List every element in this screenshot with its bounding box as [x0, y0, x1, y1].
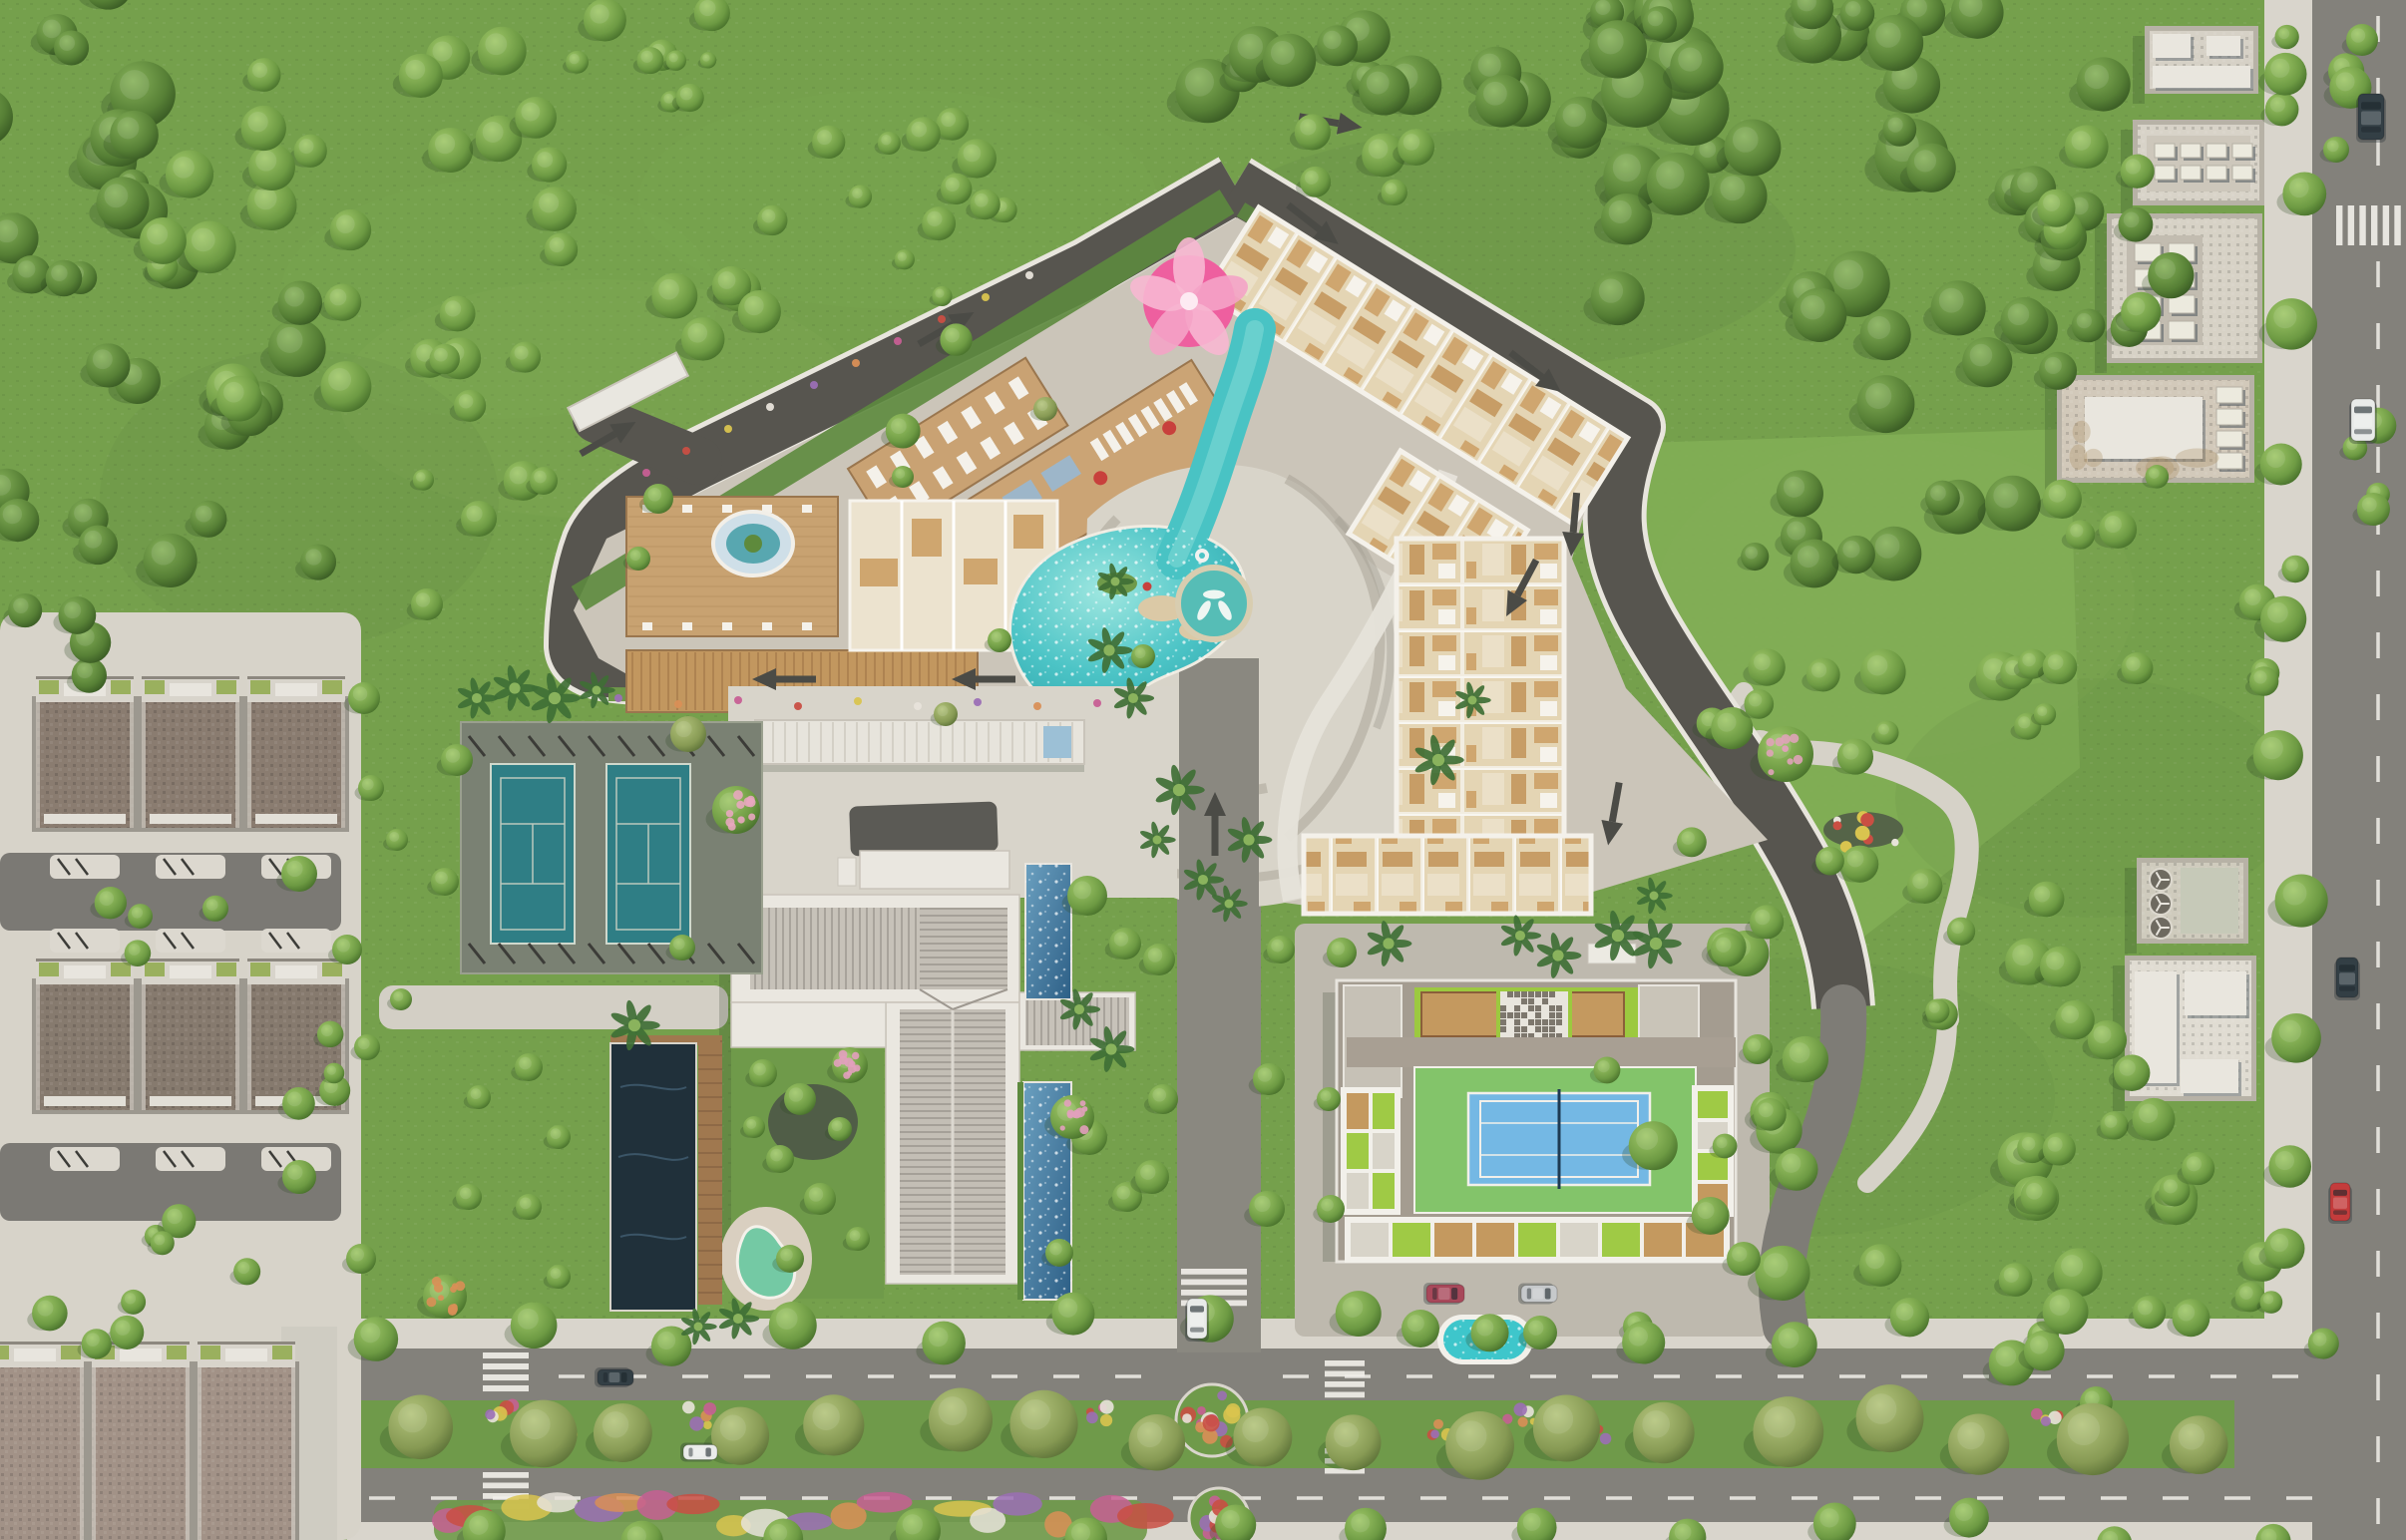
tree-highlight [852, 188, 863, 198]
median-flowers [703, 1402, 716, 1415]
tree-highlight [1779, 1328, 1800, 1348]
border-flowers [642, 469, 650, 477]
palm-crown [1173, 784, 1185, 796]
tree-highlight [2270, 59, 2289, 78]
border-flowers [674, 700, 682, 708]
tree-highlight [2126, 656, 2140, 670]
pool-float-red [1143, 582, 1152, 591]
tree-highlight [1332, 942, 1346, 956]
tree-highlight [446, 748, 460, 762]
qr-cell [1521, 991, 1527, 997]
roof-gutter [291, 1367, 295, 1540]
windshield [2339, 964, 2355, 970]
terrace-turf [0, 1346, 9, 1359]
qr-cell [1528, 998, 1534, 1004]
terrace-turf [39, 962, 59, 976]
tree-highlight [946, 178, 960, 192]
tree-highlight [351, 1248, 365, 1262]
roof-gutter [36, 702, 40, 828]
roundel-flowers [1182, 1413, 1192, 1423]
rear-window [1432, 1288, 1437, 1300]
tree-highlight [93, 349, 113, 369]
median-flowers [1600, 1433, 1612, 1445]
terrace-turf [322, 962, 342, 976]
tree-highlight [1875, 534, 1900, 559]
tree-highlight [898, 252, 907, 261]
tree-highlight [305, 549, 321, 565]
tree-highlight [515, 346, 529, 360]
terrace-deck [120, 1348, 162, 1361]
tree-highlight [120, 70, 150, 100]
palm-crown [628, 1019, 640, 1031]
rooftop-tennis-building [1323, 944, 1736, 1263]
terrace-deck [64, 965, 106, 978]
tree-highlight [2263, 1294, 2273, 1304]
tree-highlight [1242, 1415, 1269, 1442]
qr-cell [1535, 1005, 1541, 1011]
tree-highlight [2105, 516, 2122, 533]
tree-highlight [1563, 104, 1587, 128]
blossom [1790, 734, 1799, 743]
terrace-turf [216, 680, 236, 694]
tree-highlight [405, 60, 425, 80]
tree-highlight [2068, 1413, 2101, 1446]
qr-cell [1500, 1019, 1506, 1025]
tree-highlight [673, 939, 685, 951]
tree-highlight [570, 54, 580, 64]
townhouse [0, 1342, 84, 1540]
tree-highlight [2072, 131, 2092, 151]
pergola-cell [1347, 1133, 1369, 1169]
garden-flowers [857, 1492, 913, 1513]
border-flowers [982, 293, 990, 301]
tree-highlight [2351, 28, 2365, 42]
qr-cell [1549, 1026, 1555, 1032]
palm-crown [593, 686, 601, 695]
roof-gutter [186, 1367, 190, 1540]
qr-cell [1549, 1019, 1555, 1025]
palm-crown [1074, 1004, 1084, 1014]
blossom [1079, 1125, 1088, 1134]
tree-highlight [1528, 1321, 1543, 1336]
tree-highlight [2077, 313, 2092, 328]
tree-highlight [1483, 82, 1507, 106]
palm-crown [1153, 836, 1162, 845]
tree-highlight [1732, 1247, 1747, 1262]
tree-highlight [1929, 1002, 1940, 1013]
front-terrace [44, 1096, 126, 1106]
tree-highlight [84, 531, 102, 549]
tree-highlight [358, 1038, 370, 1050]
blossom [438, 1295, 444, 1301]
tree-highlight [699, 0, 715, 16]
tree-highlight [2138, 1300, 2153, 1315]
pergola-cell [1373, 1093, 1395, 1129]
pool-float-ring-hole [1199, 553, 1205, 559]
crosswalk-stripe [2383, 205, 2389, 245]
tree-highlight [2187, 1156, 2202, 1171]
border-flowers [1033, 702, 1041, 710]
fountain-leaf [1203, 590, 1225, 599]
pergola-cell [1373, 1173, 1395, 1209]
tree-highlight [2149, 468, 2160, 479]
palm-crown [694, 1323, 703, 1332]
crosswalk-stripe [1181, 1269, 1247, 1275]
rear-window [688, 1448, 692, 1457]
tree-highlight [1403, 134, 1420, 151]
tree-highlight [459, 394, 473, 408]
tree-highlight [602, 1411, 628, 1437]
median-flowers [1100, 1400, 1114, 1414]
park-flowers [1855, 826, 1870, 841]
roof-gutter [130, 984, 134, 1110]
tree-highlight [2266, 449, 2285, 468]
crosswalk-stripe [2336, 205, 2342, 245]
border-flowers [938, 315, 946, 323]
tree-highlight [789, 1087, 803, 1101]
tree-highlight [2178, 1304, 2195, 1321]
tree-highlight [2244, 589, 2260, 605]
qr-cell [1549, 991, 1555, 997]
car [680, 1443, 717, 1462]
qr-cell [1535, 1012, 1541, 1018]
qr-cell [1521, 1026, 1527, 1032]
garden-flowers [537, 1492, 578, 1512]
tree-highlight [1323, 31, 1341, 49]
tree-highlight [590, 4, 608, 23]
boulevard-junction [2234, 1400, 2406, 1468]
windshield [2361, 102, 2381, 109]
tree-highlight [152, 541, 176, 565]
car [2328, 1183, 2352, 1224]
tree-highlight [117, 117, 139, 139]
tree-highlight [1759, 1102, 1774, 1117]
roundel-flowers [1226, 1403, 1240, 1417]
blossom [1776, 737, 1785, 746]
median-flowers [703, 1420, 712, 1429]
tree-highlight [483, 122, 504, 143]
roof-gutter [198, 1367, 201, 1540]
tree-highlight [832, 1120, 843, 1131]
pergola-cell [1393, 1223, 1430, 1257]
tree-highlight [964, 145, 982, 163]
border-flowers [1093, 699, 1101, 707]
tree-highlight [299, 139, 314, 154]
palm-crown [1468, 696, 1477, 705]
tree-highlight [129, 944, 141, 956]
terrace-deck [225, 1348, 267, 1361]
tree-highlight [196, 506, 212, 523]
qr-cell [1528, 1005, 1534, 1011]
ac-unit [2169, 321, 2195, 339]
site-plan-rendering [0, 0, 2406, 1540]
tree-highlight [2239, 1286, 2253, 1300]
roof-gutter [130, 702, 134, 828]
tree-highlight [287, 1165, 302, 1180]
tree-highlight [43, 20, 62, 39]
tree-highlight [2179, 1423, 2205, 1449]
tree-highlight [992, 631, 1002, 642]
tree-highlight [1784, 477, 1804, 498]
palm-crown [1128, 693, 1138, 703]
tree-highlight [2070, 524, 2083, 537]
tree-highlight [1888, 118, 1903, 133]
tree-highlight [2260, 737, 2283, 760]
tree-highlight [746, 1119, 756, 1129]
tree-highlight [1787, 522, 1805, 541]
median-flowers [1433, 1419, 1443, 1429]
tree-highlight [435, 134, 455, 154]
tree-highlight [1629, 1327, 1648, 1346]
canopy-roof [755, 720, 1084, 764]
tree-highlight [1819, 851, 1832, 864]
terrace-deck [275, 683, 317, 696]
tree-highlight [2105, 1115, 2118, 1128]
tree-highlight [720, 1414, 746, 1440]
tennis-courts [461, 722, 762, 973]
tree-highlight [776, 1308, 798, 1330]
pavilion-furniture [860, 559, 898, 586]
roof-stain [2176, 448, 2218, 467]
tree-highlight [630, 550, 641, 561]
blossom [726, 810, 733, 817]
qr-cell [1549, 1005, 1555, 1011]
tree-highlight [945, 328, 960, 343]
roof-gutter [247, 702, 251, 828]
roof-slab [2153, 34, 2191, 58]
ac-unit [2155, 144, 2175, 158]
ac-unit [2181, 166, 2201, 180]
tree-highlight [1037, 400, 1048, 411]
qr-cell [1542, 1019, 1548, 1025]
roof-slab [2185, 971, 2246, 1015]
tree-highlight [416, 472, 426, 482]
border-flowers [974, 698, 982, 706]
aerial-site-plan [0, 0, 2406, 1540]
tree-highlight [519, 1057, 532, 1070]
tree-highlight [1153, 1088, 1167, 1102]
windshield [705, 1448, 710, 1457]
deck-chair [802, 622, 812, 630]
car [1518, 1284, 1557, 1305]
tree-highlight [2017, 172, 2038, 192]
roof-gutter [341, 702, 345, 828]
tree-highlight [2046, 952, 2064, 969]
tree-highlight [1790, 1042, 1810, 1063]
pergola-cell [1518, 1223, 1556, 1257]
terrace-deck [275, 965, 317, 978]
tree-highlight [680, 88, 693, 101]
car-roof [2361, 111, 2381, 125]
driveway-apron [50, 1147, 120, 1171]
tree-highlight [2034, 886, 2050, 902]
tree-highlight [1733, 127, 1759, 153]
driveway-apron [156, 1147, 225, 1171]
tree-highlight [657, 1332, 675, 1349]
pergola-cell [1351, 1223, 1389, 1257]
entrance-canopy [860, 851, 1009, 889]
tree-highlight [1321, 1090, 1332, 1101]
median-flowers [1518, 1417, 1528, 1427]
tree-highlight [770, 1149, 783, 1162]
blossom [1080, 1100, 1086, 1106]
pavilion-furniture [912, 519, 942, 557]
tree-highlight [167, 1209, 182, 1224]
palm-crown [1552, 950, 1563, 961]
crosswalk-stripe [483, 1385, 529, 1391]
border-flowers [614, 694, 622, 702]
tree-highlight [252, 63, 267, 78]
pavilion-furniture [964, 559, 998, 584]
tree-highlight [206, 899, 218, 911]
pergola-cell [1560, 1223, 1598, 1257]
palm-crown [1105, 1043, 1116, 1054]
tree-highlight [1049, 1243, 1062, 1256]
tree-highlight [1073, 881, 1091, 899]
tree-highlight [328, 368, 351, 391]
blossom [1766, 738, 1774, 746]
windshield [1190, 1306, 1204, 1312]
tree-highlight [51, 265, 67, 281]
car [595, 1367, 633, 1387]
terrace-deck [170, 683, 211, 696]
tree-highlight [663, 94, 673, 104]
tree-highlight [1117, 1186, 1131, 1200]
tree-highlight [1996, 1347, 2017, 1367]
tree-highlight [460, 1188, 472, 1200]
tree-highlight [1636, 1128, 1658, 1150]
crosswalk-stripe [1181, 1290, 1247, 1296]
terrace-railing [247, 676, 345, 679]
tree-highlight [1745, 547, 1758, 560]
tree-highlight [1058, 1299, 1077, 1318]
tree-highlight [929, 1328, 949, 1347]
tree-highlight [287, 1091, 302, 1106]
tree-highlight [393, 991, 403, 1001]
tree-highlight [1748, 1038, 1762, 1052]
tree-highlight [337, 939, 351, 953]
qr-cell [1507, 991, 1513, 997]
ac-unit [2232, 166, 2252, 180]
tree-highlight [2312, 1333, 2326, 1347]
blossom [426, 1297, 436, 1307]
tree-highlight [353, 686, 367, 700]
tree-highlight [550, 237, 565, 252]
terrace-turf [145, 680, 165, 694]
pergola-cell [1373, 1133, 1395, 1169]
blossom [834, 1059, 842, 1067]
tree-highlight [1599, 278, 1623, 302]
windshield [1545, 1289, 1551, 1300]
tree-highlight [1875, 22, 1900, 47]
tree-highlight [1300, 119, 1316, 135]
flat-roof-building [2125, 858, 2248, 954]
tree-highlight [2018, 716, 2030, 728]
east-road [2312, 0, 2406, 1540]
tree-highlight [1642, 1410, 1670, 1438]
qr-cell [1549, 1012, 1555, 1018]
tree-highlight [2050, 1295, 2071, 1316]
tree-highlight [1957, 1422, 1985, 1450]
car [1423, 1283, 1464, 1305]
qr-cell [1542, 991, 1548, 997]
roof-texture [0, 1367, 84, 1540]
qr-cell [1500, 1005, 1506, 1011]
tree-highlight [687, 323, 707, 343]
blossom [736, 801, 744, 809]
tree-highlight [104, 184, 128, 207]
pergola-cell [1476, 1223, 1514, 1257]
tree-highlight [2037, 706, 2047, 716]
tree-highlight [1697, 1202, 1714, 1219]
blossom [728, 823, 736, 831]
tree-highlight [360, 1323, 380, 1343]
ac-unit [2206, 144, 2226, 158]
tree-highlight [100, 891, 115, 906]
garden-flowers [666, 1494, 719, 1514]
crosswalk-stripe [2348, 205, 2354, 245]
palm-crown [1612, 930, 1624, 942]
blossom [747, 796, 755, 804]
roof-slab [2181, 1059, 2238, 1093]
deck-chair [682, 505, 692, 513]
tree-highlight [2270, 1234, 2288, 1252]
driveway-apron [156, 929, 225, 953]
terrace-railing [142, 959, 239, 962]
qr-cell [1507, 1012, 1513, 1018]
palm-crown [472, 693, 482, 703]
border-flowers [810, 381, 818, 389]
tree-highlight [147, 223, 168, 244]
tree-highlight [939, 1396, 968, 1425]
driveway-apron [50, 855, 120, 879]
pergola-cell [1434, 1223, 1472, 1257]
canopy-shadow [755, 764, 1084, 772]
blossom [1794, 755, 1803, 764]
tree-highlight [895, 469, 905, 479]
tree-highlight [521, 103, 540, 122]
qr-cell [1542, 998, 1548, 1004]
palm-crown [509, 682, 520, 693]
palm-crown [1383, 938, 1394, 949]
tree-highlight [2289, 178, 2309, 197]
tree-highlight [817, 130, 832, 145]
tree-highlight [520, 1409, 550, 1439]
tree-highlight [1609, 200, 1632, 223]
palm-crown [1198, 875, 1208, 885]
rear-window [2339, 986, 2355, 991]
tree-highlight [2043, 194, 2060, 211]
crosswalk-stripe [483, 1483, 529, 1489]
tree-highlight [1185, 68, 1214, 97]
tree-highlight [1833, 259, 1863, 289]
tree-highlight [1595, 0, 1610, 15]
tree-highlight [551, 1268, 562, 1279]
tree-highlight [809, 1187, 823, 1201]
tree-highlight [534, 471, 547, 484]
median-flowers [1430, 1429, 1439, 1438]
tree-highlight [780, 1249, 793, 1262]
pergola-cell [1602, 1223, 1640, 1257]
tree-highlight [469, 1516, 488, 1535]
tree-highlight [2048, 1137, 2063, 1152]
tree-highlight [1137, 1422, 1162, 1447]
tree-highlight [1148, 948, 1162, 962]
tree-highlight [1321, 1199, 1334, 1212]
driveway-apron [50, 929, 120, 953]
tree-highlight [2270, 97, 2285, 112]
tree-highlight [74, 504, 92, 522]
